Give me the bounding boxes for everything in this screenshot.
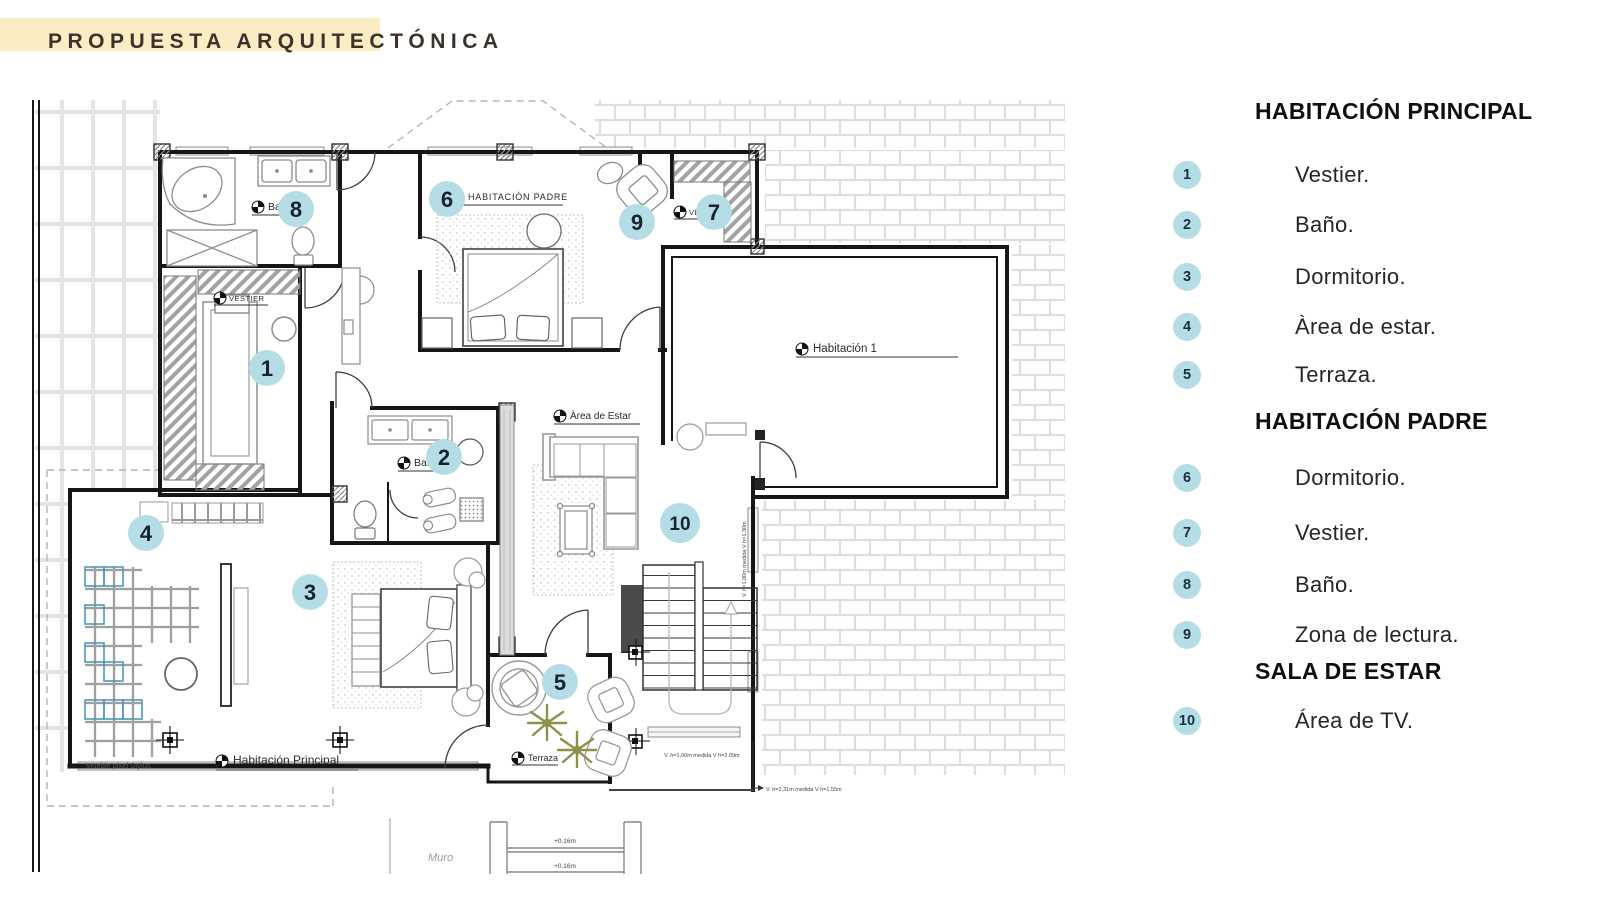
marker-9: 9 (619, 204, 655, 240)
svg-text:VESTIER: VESTIER (229, 294, 265, 303)
legend-item-vestier-7: 7 Vestier. (1135, 519, 1595, 547)
svg-text:V. h=1,00m medida V h=2.09m: V. h=1,00m medida V h=2.09m (664, 753, 740, 759)
legend-label-10: Área de TV. (1295, 707, 1413, 735)
legend-badge-6: 6 (1173, 464, 1201, 492)
legend-badge-1: 1 (1173, 161, 1201, 189)
legend-item-area-de-estar-4: 4 Àrea de estar. (1135, 313, 1595, 341)
svg-text:2: 2 (438, 445, 450, 470)
legend-item-bano-2: 2 Baño. (1135, 211, 1595, 239)
exterior-steps (390, 818, 641, 874)
label-habitacion-padre: HABITACIÒN PADRE (452, 191, 568, 205)
legend: HABITACIÓN PRINCIPAL 1 Vestier. 2 Baño. … (1135, 90, 1595, 880)
legend-label-3: Dormitorio. (1295, 263, 1406, 291)
svg-text:6: 6 (441, 187, 453, 212)
legend-item-dormitorio-3: 3 Dormitorio. (1135, 263, 1595, 291)
marker-10: 10 (660, 503, 700, 543)
bathroom-2-fixtures (354, 416, 483, 539)
legend-item-terraza-5: 5 Terraza. (1135, 361, 1595, 389)
legend-label-5: Terraza. (1295, 361, 1377, 389)
legend-item-dormitorio-6: 6 Dormitorio. (1135, 464, 1595, 492)
svg-text:4: 4 (140, 521, 153, 546)
label-terraza: Terraza (512, 752, 558, 765)
glass-partition (500, 405, 514, 655)
legend-badge-2: 2 (1173, 211, 1201, 239)
svg-text:Habitación Principal: Habitación Principal (233, 753, 339, 767)
legend-label-7: Vestier. (1295, 519, 1370, 547)
floor-plan: Baño VESTIER HABITACIÒN PADRE VESTIER Ha… (0, 0, 1080, 900)
svg-text:+0.16m: +0.16m (554, 863, 576, 870)
legend-item-bano-8: 8 Baño. (1135, 571, 1595, 599)
legend-label-4: Àrea de estar. (1295, 313, 1436, 341)
legend-item-area-de-tv-10: 10 Área de TV. (1135, 707, 1595, 735)
label-muro: Muro (428, 852, 453, 864)
svg-text:+0.16m: +0.16m (554, 838, 576, 845)
legend-label-6: Dormitorio. (1295, 464, 1406, 492)
svg-text:7: 7 (708, 200, 720, 225)
svg-text:9: 9 (631, 210, 643, 235)
marker-5: 5 (542, 664, 578, 700)
floor-plan-container: Baño VESTIER HABITACIÒN PADRE VESTIER Ha… (0, 0, 1080, 900)
marker-8: 8 (278, 191, 314, 227)
label-habitacion-1: Habitación 1 (796, 343, 958, 357)
legend-badge-4: 4 (1173, 313, 1201, 341)
legend-label-1: Vestier. (1295, 161, 1370, 189)
svg-text:3: 3 (304, 580, 316, 605)
legend-badge-10: 10 (1173, 707, 1201, 735)
svg-text:10: 10 (669, 514, 690, 535)
legend-label-2: Baño. (1295, 211, 1354, 239)
svg-text:V. h=1,00m medida V h=1.30m: V. h=1,00m medida V h=1.30m (742, 521, 748, 597)
label-area-de-estar: Àrea de Estar (554, 409, 640, 424)
staircase (621, 562, 757, 755)
legend-badge-8: 8 (1173, 571, 1201, 599)
corridor-counter (342, 268, 374, 364)
marker-7: 7 (696, 194, 732, 230)
legend-heading-habitacion-padre: HABITACIÓN PADRE (1255, 408, 1488, 435)
marker-2: 2 (426, 439, 462, 475)
marker-1: 1 (249, 350, 285, 386)
legend-heading-habitacion-principal: HABITACIÓN PRINCIPAL (1255, 98, 1532, 125)
svg-text:V. h=2,31m medida V h=1.55m: V. h=2,31m medida V h=1.55m (766, 787, 842, 793)
area-estar-furniture (533, 423, 746, 595)
svg-text:Àrea de Estar: Àrea de Estar (570, 409, 632, 422)
marker-6: 6 (429, 181, 465, 217)
legend-item-zona-de-lectura-9: 9 Zona de lectura. (1135, 621, 1595, 649)
marker-4: 4 (128, 515, 164, 551)
legend-badge-3: 3 (1173, 263, 1201, 291)
legend-heading-sala-de-estar: SALA DE ESTAR (1255, 658, 1442, 685)
legend-label-8: Baño. (1295, 571, 1354, 599)
marker-3: 3 (292, 574, 328, 610)
svg-text:Habitación 1: Habitación 1 (813, 343, 877, 355)
svg-text:8: 8 (290, 197, 302, 222)
svg-text:1: 1 (261, 356, 273, 381)
svg-text:HABITACIÒN PADRE: HABITACIÒN PADRE (468, 192, 568, 202)
legend-badge-7: 7 (1173, 519, 1201, 547)
habitacion-padre-furniture (422, 214, 602, 348)
svg-text:5: 5 (554, 670, 566, 695)
svg-text:Terraza: Terraza (528, 753, 558, 763)
legend-badge-9: 9 (1173, 621, 1201, 649)
legend-label-9: Zona de lectura. (1295, 621, 1459, 649)
legend-badge-5: 5 (1173, 361, 1201, 389)
legend-item-vestier-1: 1 Vestier. (1135, 161, 1595, 189)
label-mueble: Mueble pixel Stylus (86, 761, 151, 770)
vestier-1-island (203, 295, 296, 464)
